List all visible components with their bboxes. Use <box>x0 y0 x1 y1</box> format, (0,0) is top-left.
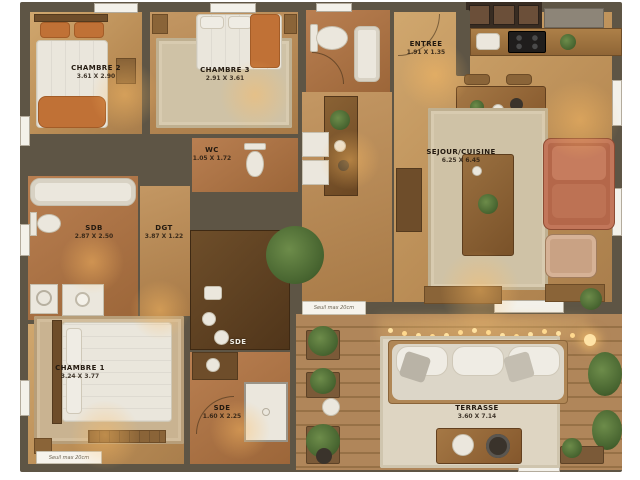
sejour-plant <box>580 288 602 310</box>
terrace-sofa-cushion-2 <box>452 346 504 376</box>
console-jar <box>338 160 349 171</box>
dining-chair-1 <box>464 74 490 85</box>
sdb-bathtub <box>30 178 136 206</box>
terrace-lamp-base <box>316 448 332 464</box>
terrace-plant-2 <box>310 368 336 394</box>
window-top-2 <box>210 3 256 13</box>
chambre-2-headboard <box>34 14 108 22</box>
kitchen-sink <box>476 33 500 50</box>
chambre-2-pillow-1 <box>40 22 70 38</box>
window-top-3 <box>316 3 352 12</box>
chambre-2-throw-blanket <box>38 96 106 128</box>
armchair <box>545 234 597 278</box>
chambre-2-nightstand <box>116 58 136 84</box>
console-plant <box>330 110 350 130</box>
island-bowl <box>472 166 482 176</box>
terrace-plant-right-3 <box>562 438 582 458</box>
washer <box>302 132 329 157</box>
chambre-1-headboard <box>52 320 62 424</box>
dining-chair-2 <box>506 74 532 85</box>
string-lights <box>388 328 393 333</box>
note-seuil-terrace: Seuil max 20cm <box>302 301 366 315</box>
chambre-3-pillow-1 <box>200 16 224 29</box>
cabinet-sink <box>204 286 222 300</box>
sejour-desk <box>396 168 422 232</box>
wc-toilet-tank <box>244 143 266 150</box>
cabinet-plate-2 <box>214 330 229 345</box>
island-plant <box>478 194 498 214</box>
terrace-plant-right-1 <box>588 352 622 396</box>
chambre-3-nightstand-left <box>152 14 168 34</box>
sdb-sink <box>75 292 90 307</box>
chambre-3-pillow-2 <box>228 16 252 29</box>
dryer <box>302 160 329 185</box>
kitchen-window <box>466 2 542 28</box>
kitchen-cabinet-gray <box>544 8 604 28</box>
window-left-3 <box>20 380 30 416</box>
window-top-1 <box>94 3 138 13</box>
tv-console <box>424 286 502 304</box>
washing-machine-door <box>36 290 52 306</box>
bathtub-top <box>354 26 380 82</box>
terrace-stool <box>322 398 340 416</box>
window-left-2 <box>20 224 30 256</box>
chambre-3-nightstand-right <box>284 14 297 34</box>
chambre-2-pillow-2 <box>74 22 104 38</box>
sofa-cushion-1 <box>552 146 606 180</box>
sde-sink <box>206 358 220 372</box>
chambre-1-pillow-2 <box>66 376 82 414</box>
coffee-table-tray-dark <box>486 434 510 458</box>
sdb-toilet <box>37 214 61 233</box>
terrace-plant-right-2 <box>592 410 622 450</box>
floor-plan: Seuil max 20cm Seuil max 20cm CHAMBRE 2 … <box>0 0 640 480</box>
chambre-1-bench <box>88 430 166 443</box>
toilet-top-bathroom <box>316 26 348 50</box>
terrace-wall-lamp <box>584 334 596 346</box>
chambre-3-throw-blanket <box>250 14 280 68</box>
coffee-table-tray-white <box>452 434 474 456</box>
console-cup <box>334 140 346 152</box>
wc-toilet <box>246 151 264 177</box>
kitchen-counter-plant <box>560 34 576 50</box>
terrace-plant-1 <box>308 326 338 356</box>
window-right-1 <box>612 80 622 126</box>
entree-kitchen-wall <box>456 10 470 76</box>
window-left-1 <box>20 116 30 146</box>
cooktop <box>508 31 546 53</box>
note-seuil-terrace-text: Seuil max 20cm <box>314 305 354 311</box>
chambre-1-pillow-1 <box>66 328 82 366</box>
note-seuil-bottom: Seuil max 20cm <box>36 451 102 464</box>
sdb-toilet-tank <box>30 212 37 236</box>
note-seuil-bottom-text: Seuil max 20cm <box>49 455 89 461</box>
shower-drain <box>262 408 270 416</box>
cabinet-plate-1 <box>202 312 216 326</box>
sofa-cushion-2 <box>552 184 606 218</box>
palm-plant <box>266 226 324 284</box>
dgt-floor <box>140 186 190 316</box>
